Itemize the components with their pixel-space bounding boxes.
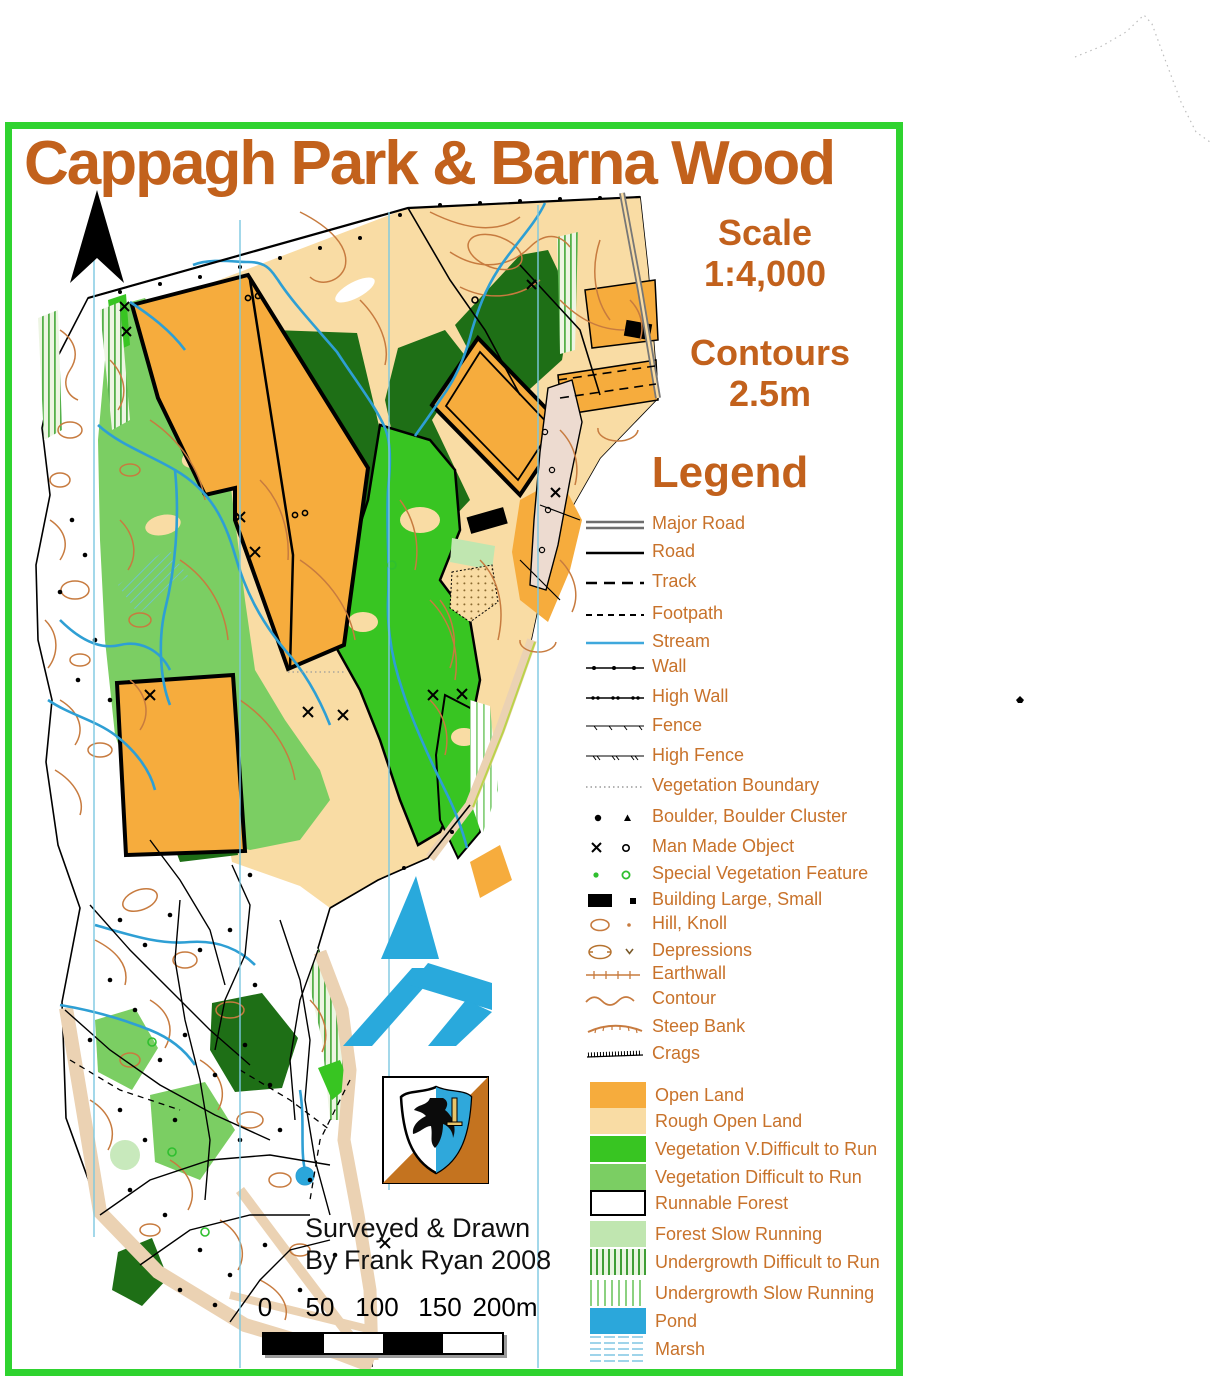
- legend-area-undergrowth-slow: Undergrowth Slow Running: [590, 1280, 890, 1306]
- vegetation-v-difficult-swatch: [590, 1136, 646, 1162]
- legend-row-fence: Fence: [584, 714, 884, 740]
- marsh-swatch: [590, 1336, 646, 1362]
- vegetation-boundary-symbol: [584, 777, 646, 797]
- undergrowth-difficult-swatch: [590, 1249, 646, 1275]
- legend-title: Legend: [630, 448, 830, 498]
- scale-bar-segment: [324, 1334, 384, 1353]
- legend-row-boulder: Boulder, Boulder Cluster: [584, 805, 884, 831]
- crags-symbol: [584, 1045, 646, 1065]
- scalebar-label-150: 150: [418, 1292, 461, 1323]
- credits-line2: By Frank Ryan 2008: [305, 1245, 551, 1277]
- runnable-forest-swatch: [590, 1190, 646, 1216]
- legend-area-veg-difficult: Vegetation Difficult to Run: [590, 1164, 890, 1190]
- steep-bank-symbol: [584, 1018, 646, 1038]
- pond-swatch: [590, 1308, 646, 1334]
- scale-bar: [262, 1332, 504, 1355]
- contours-block: Contours 2.5m: [640, 332, 900, 415]
- footpath-symbol: [584, 605, 646, 625]
- fence-symbol: [584, 717, 646, 737]
- legend-area-runnable-forest: Runnable Forest: [590, 1190, 890, 1216]
- track-symbol: [584, 573, 646, 593]
- high-fence-symbol: [584, 747, 646, 767]
- credits: Surveyed & Drawn By Frank Ryan 2008: [305, 1213, 551, 1277]
- legend-row-building: Building Large, Small: [584, 888, 884, 914]
- scalebar-label-200m: 200m: [472, 1292, 537, 1323]
- boulder-symbol: [584, 808, 646, 828]
- legend-area-pond: Pond: [590, 1308, 890, 1334]
- artifact-dotted-line: [1075, 15, 1210, 142]
- contours-value: 2.5m: [640, 373, 900, 414]
- credits-line1: Surveyed & Drawn: [305, 1213, 551, 1245]
- scale-bar-segment: [443, 1334, 503, 1353]
- legend-row-steep-bank: Steep Bank: [584, 1015, 884, 1041]
- legend-row-crags: Crags: [584, 1042, 884, 1068]
- forest-slow-swatch: [590, 1221, 646, 1247]
- legend-row-man-made-object: Man Made Object: [584, 835, 884, 861]
- scale-block: Scale 1:4,000: [640, 212, 890, 295]
- scale-label: Scale: [640, 212, 890, 253]
- contours-label: Contours: [640, 332, 900, 373]
- legend-row-wall: Wall: [584, 655, 884, 681]
- artifact-mark: [1016, 696, 1024, 703]
- building-symbol: [584, 891, 646, 911]
- legend-area-undergrowth-difficult: Undergrowth Difficult to Run: [590, 1249, 890, 1275]
- major-road-symbol: [584, 515, 646, 535]
- legend-row-hill-knoll: Hill, Knoll: [584, 912, 884, 938]
- legend-row-high-wall: High Wall: [584, 685, 884, 711]
- stream-symbol: [584, 633, 646, 653]
- legend-row-road: Road: [584, 540, 884, 566]
- road-symbol: [584, 543, 646, 563]
- high-wall-symbol: [584, 688, 646, 708]
- scale-bar-segment: [264, 1334, 324, 1353]
- legend-row-high-fence: High Fence: [584, 744, 884, 770]
- scalebar-label-0: 0: [258, 1292, 272, 1323]
- wall-symbol: [584, 658, 646, 678]
- legend-row-major-road: Major Road: [584, 512, 884, 538]
- special-vegetation-feature-symbol: [584, 865, 646, 885]
- page-title: Cappagh Park & Barna Wood: [24, 128, 888, 199]
- undergrowth-slow-swatch: [590, 1280, 646, 1306]
- vegetation-difficult-swatch: [590, 1164, 646, 1190]
- legend-row-contour: Contour: [584, 987, 884, 1013]
- scale-value: 1:4,000: [640, 253, 890, 294]
- open-land-swatch: [590, 1082, 646, 1108]
- legend-row-track: Track: [584, 570, 884, 596]
- scale-bar-segment: [383, 1334, 443, 1353]
- contour-symbol: [584, 990, 646, 1010]
- hill-knoll-symbol: [584, 915, 646, 935]
- man-made-object-symbol: [584, 838, 646, 858]
- legend-area-forest-slow: Forest Slow Running: [590, 1221, 890, 1247]
- legend-area-rough-open-land: Rough Open Land: [590, 1108, 890, 1134]
- legend-row-stream: Stream: [584, 630, 884, 656]
- rough-open-land-swatch: [590, 1108, 646, 1134]
- legend-row-footpath: Footpath: [584, 602, 884, 628]
- scalebar-label-100: 100: [355, 1292, 398, 1323]
- scalebar-label-50: 50: [306, 1292, 335, 1323]
- legend-row-earthwall: Earthwall: [584, 962, 884, 988]
- legend-row-special-vegetation-feature: Special Vegetation Feature: [584, 862, 884, 888]
- legend-area-veg-v-difficult: Vegetation V.Difficult to Run: [590, 1136, 890, 1162]
- legend-area-marsh: Marsh: [590, 1336, 890, 1362]
- page: { "header": { "title": "Cappagh Park & B…: [0, 0, 1212, 1379]
- depressions-symbol: [584, 942, 646, 962]
- earthwall-symbol: [584, 965, 646, 985]
- legend-row-vegetation-boundary: Vegetation Boundary: [584, 774, 884, 800]
- legend-area-open-land: Open Land: [590, 1082, 890, 1108]
